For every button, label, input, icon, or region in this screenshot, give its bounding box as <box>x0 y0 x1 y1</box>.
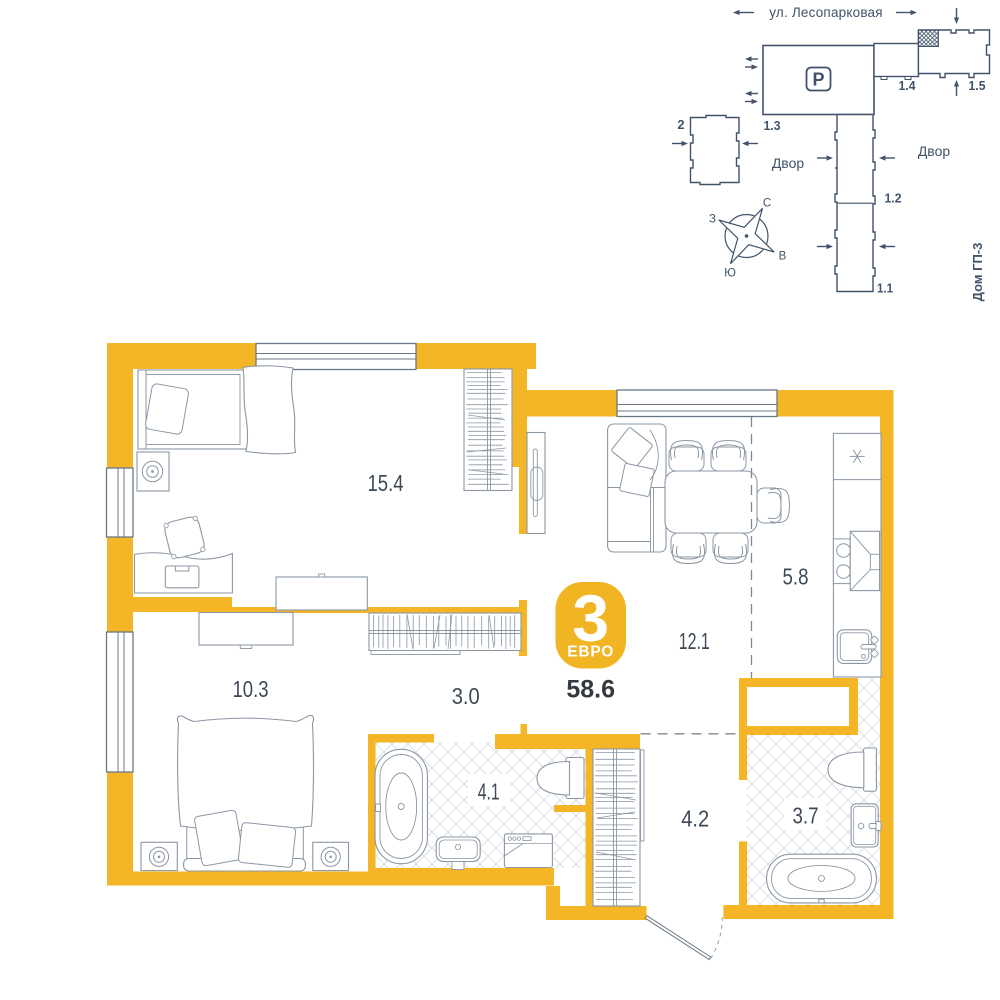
svg-text:15.4: 15.4 <box>368 470 404 496</box>
svg-text:4.2: 4.2 <box>681 806 709 832</box>
svg-text:Двор: Двор <box>772 155 805 171</box>
svg-text:4.1: 4.1 <box>478 779 500 805</box>
svg-text:Двор: Двор <box>918 143 951 159</box>
svg-text:58.6: 58.6 <box>566 676 615 704</box>
svg-text:С: С <box>763 198 771 210</box>
svg-text:1.4: 1.4 <box>899 78 917 93</box>
svg-text:ул. Лесопарковая: ул. Лесопарковая <box>769 5 883 20</box>
svg-text:12.1: 12.1 <box>679 628 710 654</box>
svg-text:P: P <box>812 70 824 90</box>
svg-text:Ю: Ю <box>724 268 736 280</box>
svg-text:Дом ГП-3: Дом ГП-3 <box>970 243 985 302</box>
svg-text:2: 2 <box>677 117 684 132</box>
svg-text:10.3: 10.3 <box>233 676 269 702</box>
svg-text:1.1: 1.1 <box>877 280 893 295</box>
svg-text:В: В <box>779 251 787 263</box>
svg-text:1.5: 1.5 <box>969 78 986 93</box>
svg-text:ЕВРО: ЕВРО <box>567 644 614 661</box>
svg-text:1.3: 1.3 <box>764 118 781 133</box>
svg-text:1.2: 1.2 <box>885 191 902 206</box>
svg-text:3.7: 3.7 <box>793 803 819 829</box>
svg-text:5.8: 5.8 <box>783 564 809 590</box>
svg-text:3.0: 3.0 <box>452 683 480 709</box>
svg-text:З: З <box>709 214 716 226</box>
